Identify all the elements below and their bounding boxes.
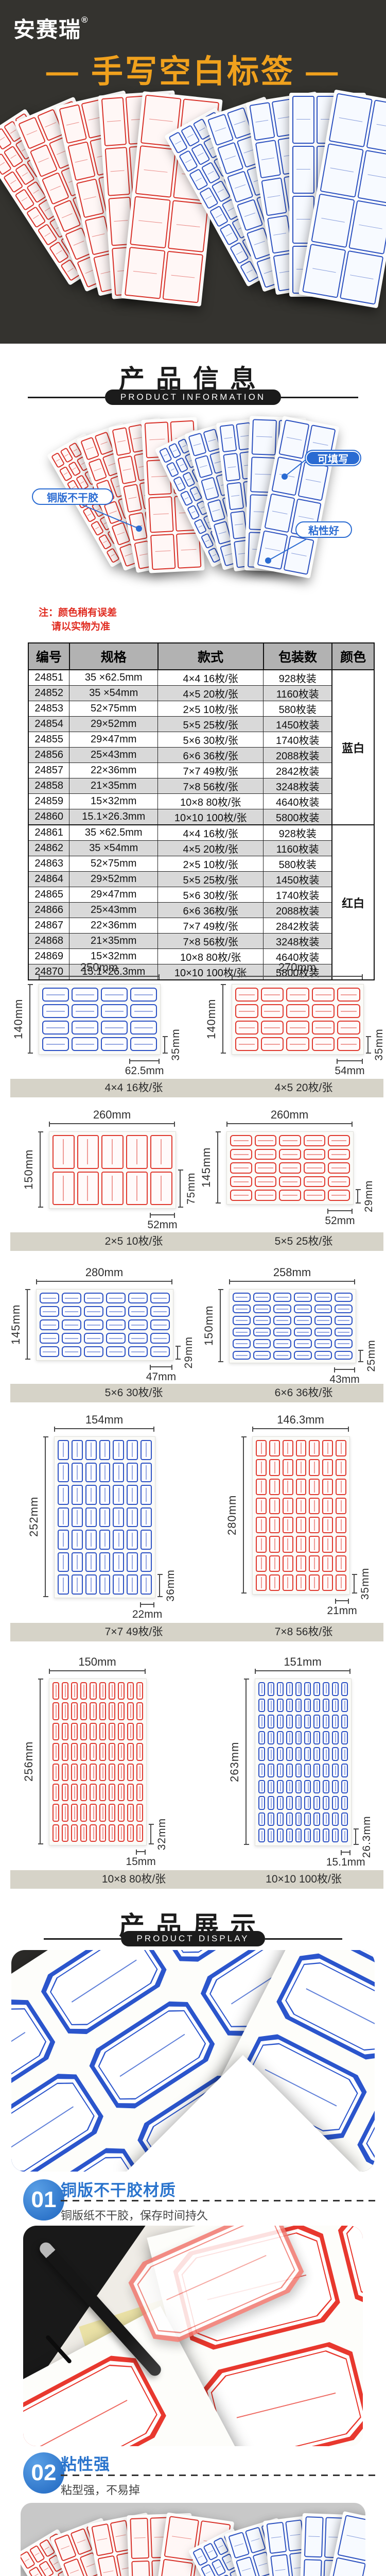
label-cell <box>286 1037 309 1051</box>
table-row: 2486625×43mm6×6 36枚/张2088枚装 <box>28 903 374 918</box>
hero-product-photo <box>0 0 386 344</box>
label-cell <box>99 1824 106 1842</box>
label-cell <box>71 1682 78 1700</box>
label-cell <box>277 1764 284 1777</box>
label-cell <box>292 96 314 144</box>
table-cell: 5×6 30枚/张 <box>158 887 264 903</box>
decor <box>159 1059 160 1064</box>
label-cell <box>62 1702 68 1720</box>
label-cell <box>90 1764 96 1781</box>
table-cell: 15×32mm <box>69 794 158 809</box>
table-cell: 29×47mm <box>69 732 158 748</box>
label-cell <box>233 1304 251 1314</box>
dimension-label: 35mm <box>359 1564 372 1604</box>
label-cell <box>58 1440 69 1460</box>
label-cell <box>277 1828 284 1842</box>
decor <box>49 1122 50 1127</box>
diagram-caption: 2×5 10枚/张 <box>41 1232 226 1251</box>
label-cell <box>72 1440 83 1460</box>
dimension-arrow <box>222 984 223 1054</box>
label-cell <box>322 1498 333 1514</box>
label-cell <box>295 1715 302 1728</box>
label-cell <box>127 1764 134 1781</box>
label-cell <box>123 484 142 513</box>
label-cell <box>130 988 157 1002</box>
label-cell <box>258 1715 265 1728</box>
label-cell <box>337 1021 360 1035</box>
spec-sheet <box>54 1436 155 1598</box>
diagram-caption: 5×6 30枚/张 <box>41 1384 226 1402</box>
decor <box>140 1602 141 1607</box>
label-cell <box>255 1190 277 1201</box>
label-cell <box>127 1702 134 1720</box>
label-cell <box>99 1723 106 1740</box>
label-cell <box>127 1552 138 1572</box>
decor <box>366 1036 371 1037</box>
label-cell <box>313 1731 320 1745</box>
label-cell <box>269 1555 280 1572</box>
label-cell <box>117 455 136 484</box>
label-cell <box>279 1190 301 1201</box>
label-cell <box>40 1333 59 1344</box>
table-row: 2486352×75mm2×5 10枚/张580枚装 <box>28 856 374 872</box>
table-cell: 24867 <box>28 918 69 934</box>
dimension-arrow <box>45 1436 46 1597</box>
dimension-label: 256mm <box>22 1679 36 1844</box>
callout-material: 铜版不干胶 <box>32 488 113 505</box>
label-cell <box>52 1804 59 1821</box>
dimension-label: 26.3mm <box>361 1818 373 1855</box>
dimension-arrow <box>341 1852 350 1853</box>
label-cell <box>286 1764 293 1777</box>
label-cell <box>258 1699 265 1713</box>
label-cell <box>337 1004 360 1018</box>
label-cell <box>80 1723 87 1740</box>
dimension-arrow <box>36 1281 172 1282</box>
table-cell: 21×35mm <box>69 934 158 949</box>
label-cell <box>258 1812 265 1826</box>
label-cell <box>295 1747 302 1761</box>
label-cell <box>286 1682 293 1696</box>
label-cell <box>150 534 176 570</box>
label-cell <box>52 1682 59 1700</box>
label-cell <box>296 1536 307 1552</box>
table-cell: 7×8 56枚/张 <box>158 778 264 794</box>
table-row: 2485529×47mm5×6 30枚/张1740枚装 <box>28 732 374 748</box>
label-cell <box>130 2518 149 2559</box>
table-cell: 24863 <box>28 856 69 872</box>
label-cell <box>309 1440 320 1456</box>
label-cell <box>233 1316 251 1325</box>
label-cell <box>335 1328 353 1337</box>
diagram-caption: 5×5 25枚/张 <box>226 1232 381 1251</box>
dimension-arrow <box>252 1428 349 1429</box>
label-cell <box>314 1339 332 1348</box>
label-cell <box>269 1536 280 1552</box>
table-cell: 1740枚装 <box>264 732 332 748</box>
label-cell <box>341 1796 348 1810</box>
label-cell <box>341 1764 348 1777</box>
dimension-label: 140mm <box>12 984 25 1054</box>
label-cell <box>84 1346 103 1357</box>
diagram-caption: 10×10 100枚/张 <box>226 1870 381 1889</box>
diagram-caption: 7×7 49枚/张 <box>41 1623 226 1641</box>
dimension-arrow <box>140 1604 154 1605</box>
label-cell <box>332 1731 339 1745</box>
label-cell <box>85 1440 97 1460</box>
label-cell <box>341 1780 348 1794</box>
label-cell <box>286 1747 293 1761</box>
label-cell <box>130 1037 157 1051</box>
label-cell <box>99 1784 106 1801</box>
label-cell <box>99 1702 106 1720</box>
label-cell <box>277 1812 284 1826</box>
label-cell <box>256 1459 267 1476</box>
label-cell <box>295 1764 302 1777</box>
label-cell <box>292 146 314 194</box>
label-cell <box>127 1574 138 1595</box>
decor <box>349 1850 350 1855</box>
table-cell: 3248枚装 <box>264 934 332 949</box>
label-cell <box>313 1780 320 1794</box>
label-cell <box>126 1135 148 1169</box>
label-cell <box>72 1530 83 1550</box>
label-cell <box>283 1479 293 1495</box>
label-cell <box>328 1176 350 1188</box>
label-cell <box>273 1351 291 1360</box>
label-cell <box>106 1319 126 1330</box>
dimension-arrow <box>337 1060 363 1061</box>
label-cell <box>72 1552 83 1572</box>
label-cell <box>150 1293 170 1303</box>
label-cell <box>253 1328 271 1337</box>
label-cell <box>273 1316 291 1325</box>
label-cell <box>230 1176 252 1188</box>
feature-dashed-divider <box>61 2475 378 2476</box>
label-cell <box>268 1699 274 1713</box>
label-cell <box>279 1162 301 1174</box>
label-cell <box>136 1824 143 1842</box>
label-cell <box>128 1346 148 1357</box>
table-cell: 21×35mm <box>69 778 158 794</box>
label-cell <box>150 1319 170 1330</box>
decor <box>38 1679 43 1680</box>
table-cell: 10×10 100枚/张 <box>158 809 264 825</box>
label-cell <box>335 1293 353 1302</box>
label-cell <box>90 1723 96 1740</box>
label-cell <box>136 1682 143 1700</box>
table-row: 2485915×32mm10×8 80枚/张4640枚装 <box>28 794 374 809</box>
label-cell <box>58 1574 69 1595</box>
label-cell <box>269 1440 280 1456</box>
label-cell <box>279 1149 301 1160</box>
label-cell <box>341 1731 348 1745</box>
decor <box>244 1844 249 1845</box>
label-cell <box>297 462 328 501</box>
decor <box>171 1279 172 1284</box>
label-cell <box>341 1682 348 1696</box>
label-cell <box>127 1824 134 1842</box>
table-row: 2485135 ×62.5mm4×4 16枚/张928枚装蓝白 <box>28 670 374 686</box>
label-cell <box>304 1149 326 1160</box>
decor <box>354 1844 359 1845</box>
dimension-arrow <box>335 1600 349 1601</box>
label-cell <box>230 1149 252 1160</box>
hero-banner: 安赛瑞® — 手写空白标签 — <box>0 0 386 344</box>
table-row: 2485235 ×54mm4×5 20枚/张1160枚装 <box>28 686 374 701</box>
table-cell: 15.1×26.3mm <box>69 809 158 825</box>
dimension-label: 146.3mm <box>252 1413 349 1427</box>
label-cell <box>62 1784 68 1801</box>
label-cell <box>85 1552 97 1572</box>
label-cell <box>84 1319 103 1330</box>
table-cell: 24859 <box>28 794 69 809</box>
decor <box>145 1850 146 1855</box>
label-cell <box>109 1682 115 1700</box>
label-cell <box>80 1682 87 1700</box>
dimension-label: 263mm <box>228 1679 241 1845</box>
dimension-arrow <box>226 1123 353 1124</box>
dimension-arrow <box>136 1851 146 1852</box>
spec-sheet <box>229 1289 356 1363</box>
table-row: 2486722×36mm7×7 49枚/张2842枚装 <box>28 918 374 934</box>
label-cell <box>128 1319 148 1330</box>
label-cell <box>255 1149 277 1160</box>
label-cell <box>71 1764 78 1781</box>
dimension-arrow <box>150 1366 172 1367</box>
table-head: 编号规格款式包装数颜色 <box>28 643 374 670</box>
label-cell <box>99 1743 106 1760</box>
label-cell <box>230 1162 252 1174</box>
dimension-arrow <box>49 1123 175 1124</box>
label-cell <box>286 1828 293 1842</box>
label-cell <box>99 1804 106 1821</box>
label-cell <box>261 1037 284 1051</box>
label-cell <box>71 1824 78 1842</box>
table-row: 2486429×52mm5×5 25枚/张1450枚装 <box>28 872 374 887</box>
label-cell <box>106 1346 126 1357</box>
label-cell <box>90 1804 96 1821</box>
decor <box>153 1602 154 1607</box>
label-cell <box>106 1306 126 1317</box>
label-cell <box>230 1135 252 1146</box>
label-cell <box>312 988 335 1002</box>
label-cell <box>332 1682 339 1696</box>
decor <box>43 1436 48 1437</box>
dimension-label: 270mm <box>232 961 363 974</box>
table-cell: 6×6 36枚/张 <box>158 903 264 918</box>
label-cell <box>336 1440 346 1456</box>
feature-dashed-divider <box>61 2200 378 2201</box>
table-cell: 1160枚装 <box>264 841 332 856</box>
dimension-arrow <box>367 1036 369 1054</box>
label-cell <box>118 1682 125 1700</box>
diagram-caption-bar: 4×4 16枚/张4×5 20枚/张 <box>10 1079 383 1097</box>
label-cell <box>268 1747 274 1761</box>
label-cell <box>268 1828 274 1842</box>
label-cell <box>295 1828 302 1842</box>
label-cell <box>304 1812 311 1826</box>
column-header: 款式 <box>158 643 264 670</box>
table-header-row: 编号规格款式包装数颜色 <box>28 643 374 670</box>
decor <box>145 1669 146 1674</box>
table-cell: 4×4 16枚/张 <box>158 825 264 841</box>
label-cell <box>269 1498 280 1514</box>
dimension-arrow <box>180 1170 181 1208</box>
label-cell <box>322 1459 333 1476</box>
label-cell <box>286 1004 309 1018</box>
dimension-label: 36mm <box>165 1564 177 1607</box>
dimension-arrow <box>360 1350 361 1362</box>
label-cell <box>80 1804 87 1821</box>
label-cell <box>296 1517 307 1533</box>
table-cell: 24857 <box>28 763 69 778</box>
label-cell <box>323 1796 329 1810</box>
label-cell <box>101 1135 124 1169</box>
label-cell <box>62 1682 68 1700</box>
table-cell: 24858 <box>28 778 69 794</box>
label-cell <box>130 196 171 248</box>
label-cell <box>283 1517 293 1533</box>
table-cell: 5×5 25枚/张 <box>158 872 264 887</box>
label-cell <box>311 193 355 248</box>
label-cell <box>126 1172 148 1206</box>
label-cell <box>72 1574 83 1595</box>
table-row: 2486015.1×26.3mm10×10 100枚/张5800枚装 <box>28 809 374 825</box>
label-cell <box>127 1723 134 1740</box>
dimension-label: 25mm <box>365 1340 378 1372</box>
label-cell <box>255 1162 277 1174</box>
label-cell <box>85 1507 97 1528</box>
label-cell <box>322 1517 333 1533</box>
label-grid <box>235 988 360 1051</box>
diagram-caption: 4×4 16枚/张 <box>41 1079 226 1097</box>
label-cell <box>295 1796 302 1810</box>
label-cell <box>99 1507 111 1528</box>
label-cell <box>80 1784 87 1801</box>
label-cell <box>332 1812 339 1826</box>
label-cell <box>328 1149 350 1160</box>
label-cell <box>336 1536 346 1552</box>
callout-writable: 可填写 <box>305 450 361 466</box>
label-grid <box>258 1682 348 1842</box>
decor <box>49 1669 50 1674</box>
spec-sheet <box>255 1679 352 1846</box>
table-row: 2486235 ×54mm4×5 20枚/张1160枚装 <box>28 841 374 856</box>
label-cell <box>309 1555 320 1572</box>
label-cell <box>304 1135 326 1146</box>
label-cell <box>113 1440 124 1460</box>
table-cell: 7×7 49枚/张 <box>158 763 264 778</box>
label-cell <box>219 424 237 452</box>
label-cell <box>269 1574 280 1591</box>
label-cell <box>304 1747 311 1761</box>
section-subtitle-pill: PRODUCT DISPLAY <box>121 1931 265 1946</box>
label-cell <box>233 1328 251 1337</box>
decor <box>38 1131 43 1132</box>
decor <box>153 1427 154 1432</box>
label-cell <box>101 1037 128 1051</box>
label-cell <box>296 1498 307 1514</box>
label-cell <box>328 1162 350 1174</box>
callout-adhesive: 粘性好 <box>295 521 352 538</box>
decor <box>335 1599 336 1604</box>
table-cell: 24861 <box>28 825 69 841</box>
decor <box>241 1592 247 1594</box>
label-cell <box>295 1731 302 1745</box>
label-cell <box>163 251 204 303</box>
dimension-arrow <box>40 1679 41 1844</box>
label-cell <box>283 1536 293 1552</box>
label-grid <box>52 1135 172 1205</box>
label-cell <box>296 1555 307 1572</box>
dimension-label: 150mm <box>22 1131 36 1208</box>
label-cell <box>286 1780 293 1794</box>
dimension-arrow <box>159 1574 160 1597</box>
label-cell <box>101 1021 128 1035</box>
decor <box>356 1189 361 1190</box>
table-cell: 24864 <box>28 872 69 887</box>
spec-sheet <box>39 984 161 1055</box>
column-header: 编号 <box>28 643 69 670</box>
label-cell <box>105 147 130 196</box>
decor <box>356 1202 361 1204</box>
label-cell <box>136 1764 143 1781</box>
decor <box>174 1122 175 1127</box>
label-cell <box>258 1796 265 1810</box>
table-cell: 2088枚装 <box>264 903 332 918</box>
dimension-arrow <box>243 1436 244 1594</box>
label-cell <box>235 1021 258 1035</box>
label-cell <box>62 1333 81 1344</box>
table-cell: 2842枚装 <box>264 918 332 934</box>
label-cell <box>314 1304 332 1314</box>
dimension-label: 75mm <box>185 1159 198 1218</box>
label-cell <box>71 1804 78 1821</box>
label-cell <box>128 1293 148 1303</box>
label-cell <box>296 1459 307 1476</box>
table-cell: 10×8 80枚/张 <box>158 794 264 809</box>
label-cell <box>141 1463 152 1483</box>
label-cell <box>277 1747 284 1761</box>
label-cell <box>109 1824 115 1842</box>
label-cell <box>223 453 240 481</box>
label-cell <box>323 1828 329 1842</box>
label-cell <box>85 1530 97 1550</box>
label-cell <box>332 1764 339 1777</box>
label-cell <box>127 1784 134 1801</box>
label-cell <box>286 1715 293 1728</box>
decor <box>354 1367 355 1372</box>
product-detail-page: 安赛瑞® — 手写空白标签 — 产品信息 PRODUCT INFORMATION… <box>0 0 386 2576</box>
color-group-cell: 红白 <box>332 825 374 980</box>
decor <box>216 1202 221 1204</box>
label-cell <box>150 1346 170 1357</box>
label-cell <box>127 1682 134 1700</box>
label-cell <box>258 1828 265 1842</box>
label-cell <box>304 1828 311 1842</box>
label-cell <box>252 419 277 455</box>
dimension-label: 150mm <box>202 1289 216 1362</box>
label-cell <box>256 1555 267 1572</box>
label-cell <box>62 1764 68 1781</box>
label-cell <box>62 1824 68 1842</box>
decor <box>362 974 363 979</box>
dimension-label: 140mm <box>205 984 218 1054</box>
label-cell <box>257 530 288 570</box>
table-row: 2485625×43mm6×6 36枚/张2088枚装 <box>28 748 374 763</box>
label-cell <box>109 1804 115 1821</box>
